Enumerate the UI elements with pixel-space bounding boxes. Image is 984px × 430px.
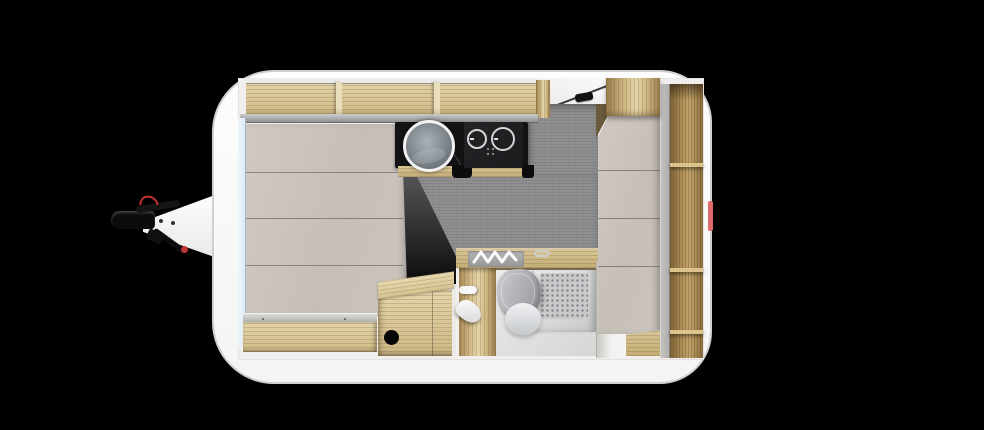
wardrobe-seam [598,218,660,219]
sink-highlight [411,146,447,167]
side-window-strip [238,118,246,346]
step-cabinet-front [378,290,454,356]
caravan-floorplan-scene [0,0,984,430]
shower-tray [532,264,598,334]
shower-drain-field [540,273,588,319]
cushion-seam [246,265,403,266]
front-wall-edge [246,78,538,84]
rear-shelf-column [670,84,703,358]
kitchen-round-sink [403,120,455,172]
cabinet-round-cutout [384,330,399,345]
bench-screw [344,318,346,320]
overhead-lockers [246,78,538,118]
wardrobe-seam [598,170,660,171]
hob-burner-large [491,127,515,151]
hob-burner-small [467,129,487,149]
cushion-seam [246,218,403,219]
locker-end-panel [536,80,550,118]
burner-tick [494,138,498,140]
folding-tap-icon [472,249,520,265]
hob-control-dot [487,148,489,150]
jockey-wheel-knob [181,246,188,253]
cushion-seam [246,172,403,173]
bench-front-panel [243,322,377,352]
hob-control-dot [492,148,494,150]
shelf-edge [670,163,703,167]
cabinet-divider-line [432,290,433,356]
kitchen-hob [464,122,523,168]
burner-tick [470,138,474,140]
awning-rail-marker [708,201,713,231]
drawbar-bolt [171,221,175,225]
counter-bracket [522,165,534,178]
shelf-gray-divider [660,84,670,358]
bench-screw [262,318,264,320]
door-pill-handle [459,286,477,294]
rear-top-cabinet [606,78,660,116]
hob-control-dot [492,153,494,155]
wardrobe-seam [598,266,660,267]
column-top-shadow [670,84,703,100]
shelf-edge [670,268,703,272]
counter-latch [534,250,550,257]
drawbar-bolt [159,219,163,223]
toilet-bowl [505,303,541,335]
shelf-edge [670,330,703,334]
wardrobe-front-panels [598,108,660,334]
hob-control-dot [487,153,489,155]
